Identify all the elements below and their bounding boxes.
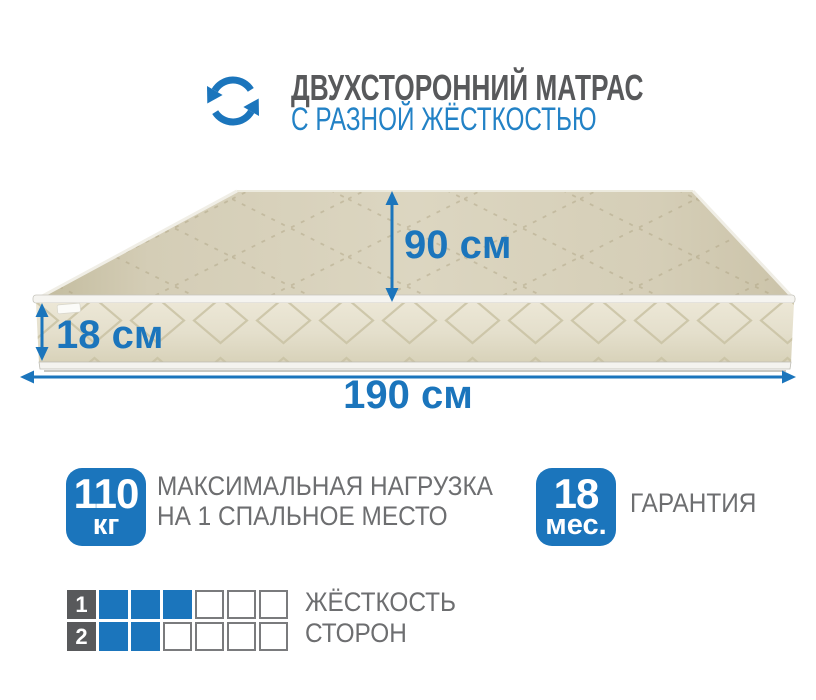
firmness-label-line1: ЖЁСТКОСТЬ bbox=[305, 587, 456, 618]
warranty-badge: 18 мес. bbox=[536, 468, 616, 546]
page-subtitle: С РАЗНОЙ ЖЁСТКОСТЬЮ bbox=[291, 103, 597, 135]
firmness-side-number: 1 bbox=[67, 590, 96, 619]
width-dimension-label: 90 см bbox=[404, 223, 511, 267]
max-load-value: 110 bbox=[74, 476, 139, 512]
firmness-row: 2 bbox=[67, 622, 288, 651]
firmness-cell-empty bbox=[195, 590, 224, 619]
length-dimension-label: 190 см bbox=[343, 373, 473, 417]
mattress-bottom-piping bbox=[39, 362, 791, 369]
firmness-cell-filled bbox=[99, 622, 128, 651]
firmness-cell-empty bbox=[259, 590, 288, 619]
warranty-unit: мес. bbox=[545, 512, 606, 539]
max-load-badge: 110 кг bbox=[66, 468, 146, 546]
firmness-label-line2: СТОРОН bbox=[305, 618, 456, 649]
mattress-top-piping bbox=[33, 295, 795, 303]
firmness-cell-empty bbox=[163, 622, 192, 651]
firmness-side-number: 2 bbox=[67, 622, 96, 651]
warranty-value: 18 bbox=[554, 476, 599, 512]
height-dimension-label: 18 см bbox=[56, 313, 163, 357]
max-load-label-line1: МАКСИМАЛЬНАЯ НАГРУЗКА bbox=[157, 471, 493, 501]
firmness-cell-empty bbox=[259, 622, 288, 651]
firmness-cell-filled bbox=[131, 590, 160, 619]
rotate-arrows-icon bbox=[202, 70, 264, 134]
firmness-cell-filled bbox=[163, 590, 192, 619]
firmness-grid: 12 bbox=[67, 590, 288, 654]
firmness-cell-filled bbox=[131, 622, 160, 651]
warranty-label: ГАРАНТИЯ bbox=[630, 488, 756, 518]
infographic-canvas: ДВУХСТОРОННИЙ МАТРАС С РАЗНОЙ ЖЁСТКОСТЬЮ bbox=[0, 0, 816, 700]
firmness-cell-empty bbox=[227, 622, 256, 651]
max-load-label: МАКСИМАЛЬНАЯ НАГРУЗКА НА 1 СПАЛЬНОЕ МЕСТ… bbox=[157, 471, 493, 531]
max-load-unit: кг bbox=[93, 512, 120, 539]
firmness-cell-empty bbox=[227, 590, 256, 619]
firmness-cell-empty bbox=[195, 622, 224, 651]
firmness-row: 1 bbox=[67, 590, 288, 619]
firmness-cell-filled bbox=[99, 590, 128, 619]
firmness-label: ЖЁСТКОСТЬ СТОРОН bbox=[305, 587, 456, 648]
mattress-diagram: 90 см 18 см 190 см bbox=[0, 170, 816, 420]
warranty-label-line1: ГАРАНТИЯ bbox=[630, 488, 756, 518]
max-load-label-line2: НА 1 СПАЛЬНОЕ МЕСТО bbox=[157, 501, 493, 531]
